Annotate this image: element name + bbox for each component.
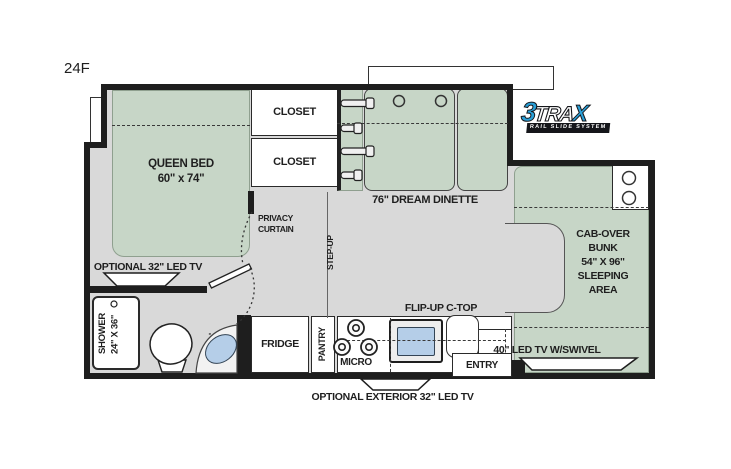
cab-tv-label: 40" LED TV W/SWIVEL (448, 344, 646, 358)
fridge: FRIDGE (251, 316, 309, 373)
cab-over-label-line2: BUNK (548, 241, 658, 255)
fridge-label: FRIDGE (261, 338, 299, 352)
privacy-curtain-wall-stub (248, 191, 254, 214)
shower-label: SHOWER 24" X 36" (97, 301, 122, 367)
cab-over-label: CAB-OVER BUNK 54" X 96" SLEEPING AREA (548, 227, 658, 297)
wall-left-upper (101, 84, 107, 148)
entry-label: ENTRY (466, 359, 498, 372)
privacy-curtain-label: PRIVACY CURTAIN (258, 213, 294, 235)
step-up-label: STEP-UP (325, 230, 336, 276)
kitchen-sink-basin (397, 327, 435, 356)
cab-over-label-line3: 54" X 96" (548, 255, 658, 269)
dinette-seat-left (364, 88, 455, 191)
bed-slide-dash (112, 125, 250, 126)
closet-bottom-label: CLOSET (273, 155, 316, 169)
wall-top-main (101, 84, 513, 90)
dinette-rail-strip (337, 89, 363, 191)
queen-bed-label-line2: 60" x 74" (117, 172, 245, 187)
dinette-slide-dash (337, 123, 508, 124)
wall-left-step (84, 142, 107, 148)
model-label: 24F (64, 59, 90, 79)
bathroom-top-wall (86, 286, 207, 293)
queen-bed-label: QUEEN BED 60" x 74" (117, 157, 245, 187)
micro-label: MICRO (330, 356, 382, 369)
privacy-curtain-label-line1: PRIVACY (258, 213, 294, 224)
flip-up-ctop-label: FLIP-UP C-TOP (386, 302, 496, 316)
closet-bottom: CLOSET (251, 138, 338, 187)
pantry-label: PANTRY (317, 327, 329, 361)
exterior-tv-icon (361, 379, 430, 390)
wall-step-vertical (507, 84, 513, 166)
cab-over-label-line1: CAB-OVER (548, 227, 658, 241)
cab-over-label-line5: AREA (548, 283, 658, 297)
wall-top-cab (507, 160, 655, 166)
wall-bottom (84, 373, 655, 379)
cab-dash-top (514, 207, 649, 208)
dinette-seat-right (457, 88, 508, 191)
counter-dash (337, 340, 506, 341)
trax-logo-tagline: RAIL SLIDE SYSTEM (526, 123, 610, 133)
exterior-tv-label: OPTIONAL EXTERIOR 32" LED TV (300, 391, 485, 405)
trax-logo-tra: TRA (533, 103, 574, 126)
shower-label-line2: 24" X 36" (109, 301, 121, 367)
trax-logo: 3TRAX RAIL SLIDE SYSTEM (519, 99, 612, 133)
queen-bed-label-line1: QUEEN BED (117, 157, 245, 172)
counter-dash-v1 (390, 318, 391, 372)
privacy-curtain-label-line2: CURTAIN (258, 224, 294, 235)
bathroom-right-wall (237, 315, 251, 373)
closet-top-label: CLOSET (273, 105, 316, 119)
trax-logo-x: X (572, 100, 589, 126)
bedroom-tv-label: OPTIONAL 32" LED TV (78, 261, 218, 275)
floorplan-canvas: 24F QUEEN BED 60" x 74" CLOSET CLOSET 76… (0, 0, 731, 469)
cab-dash-bottom (514, 327, 649, 328)
closet-top: CLOSET (251, 89, 338, 136)
shower-label-line1: SHOWER (97, 301, 109, 367)
dinette-label: 76" DREAM DINETTE (330, 193, 520, 207)
cab-bunk-ladder (612, 163, 649, 210)
cab-over-label-line4: SLEEPING (548, 269, 658, 283)
